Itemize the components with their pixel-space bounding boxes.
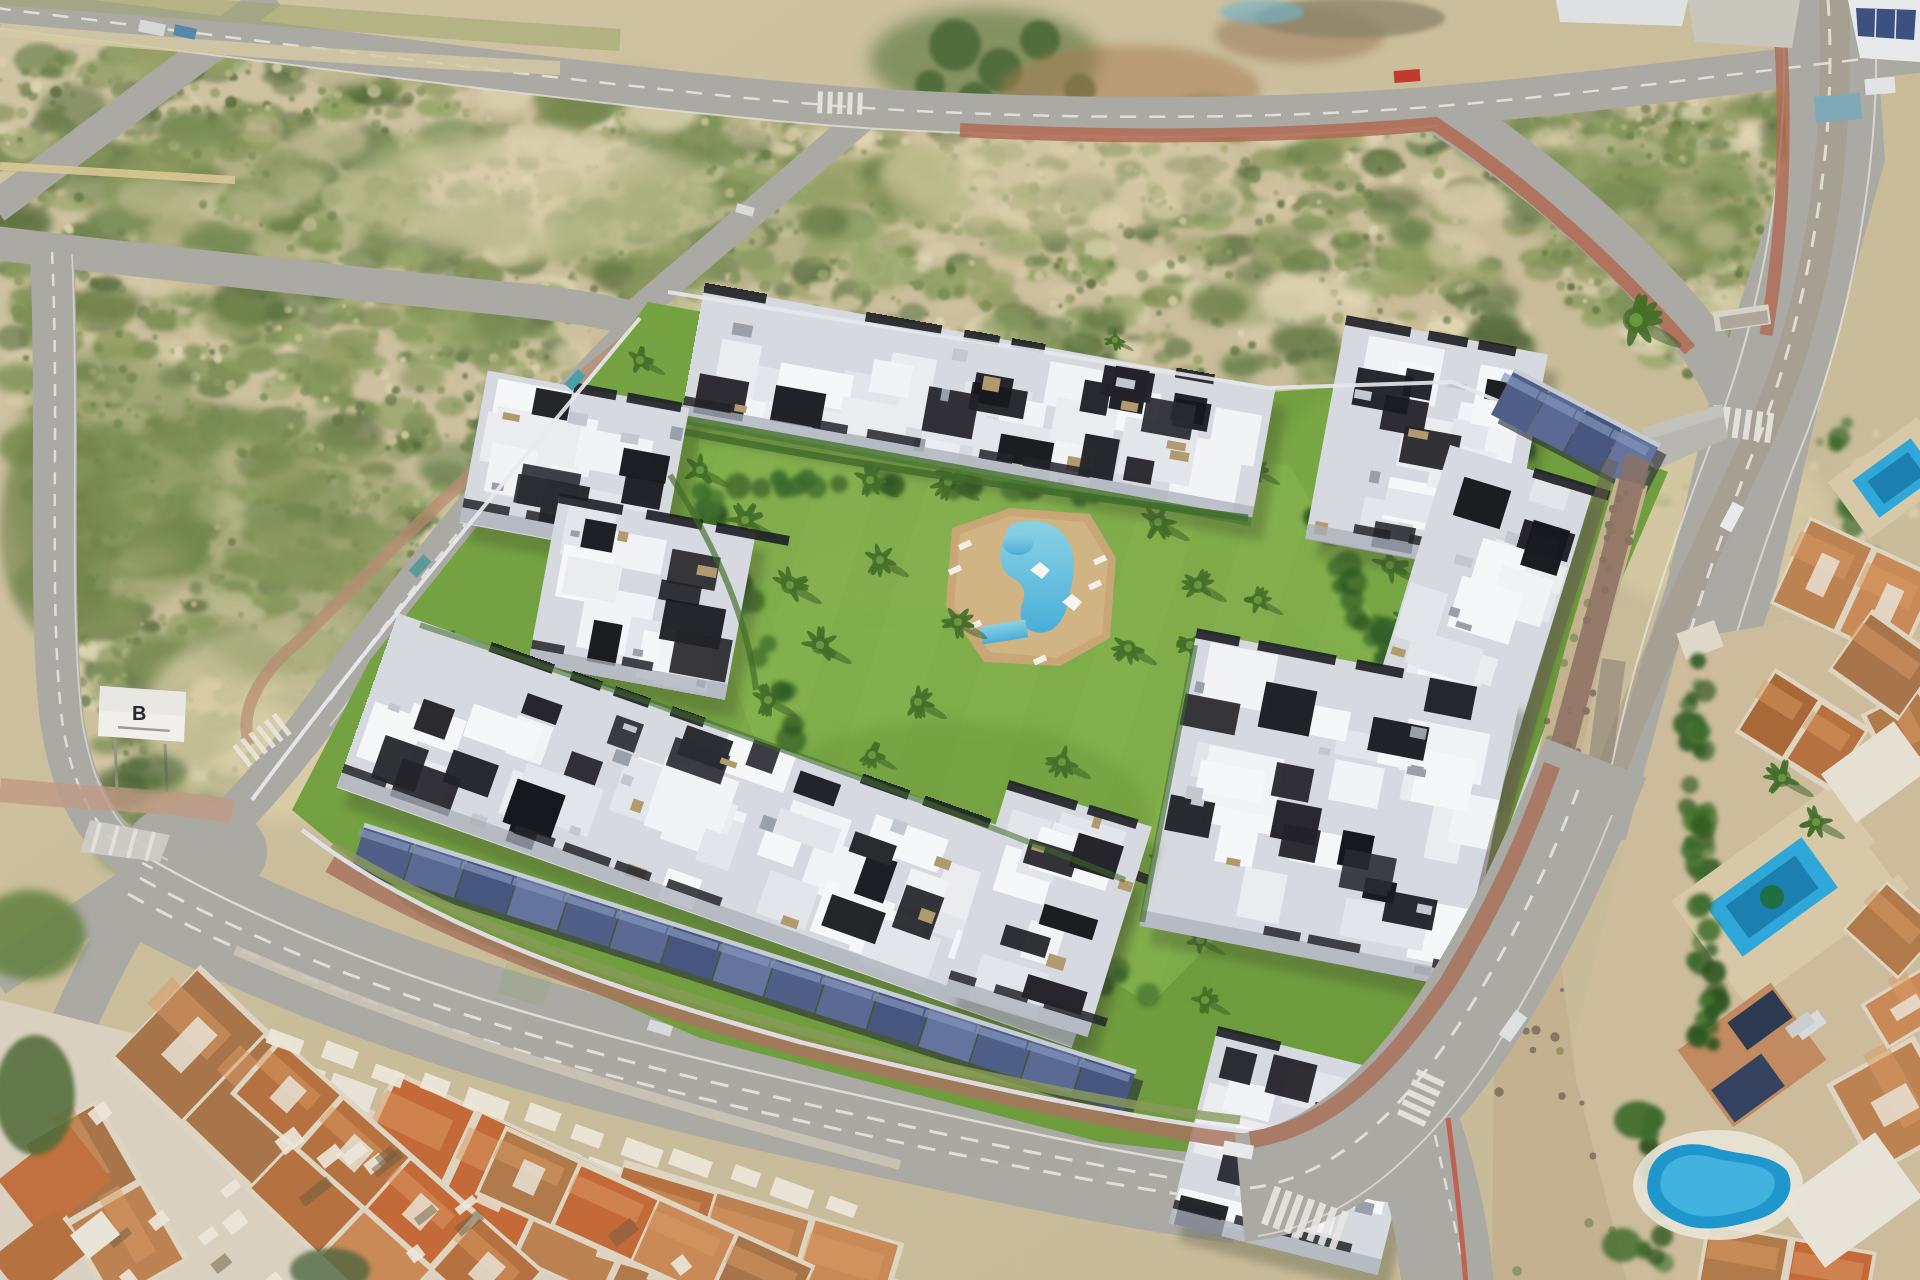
svg-text:B: B — [132, 702, 146, 724]
